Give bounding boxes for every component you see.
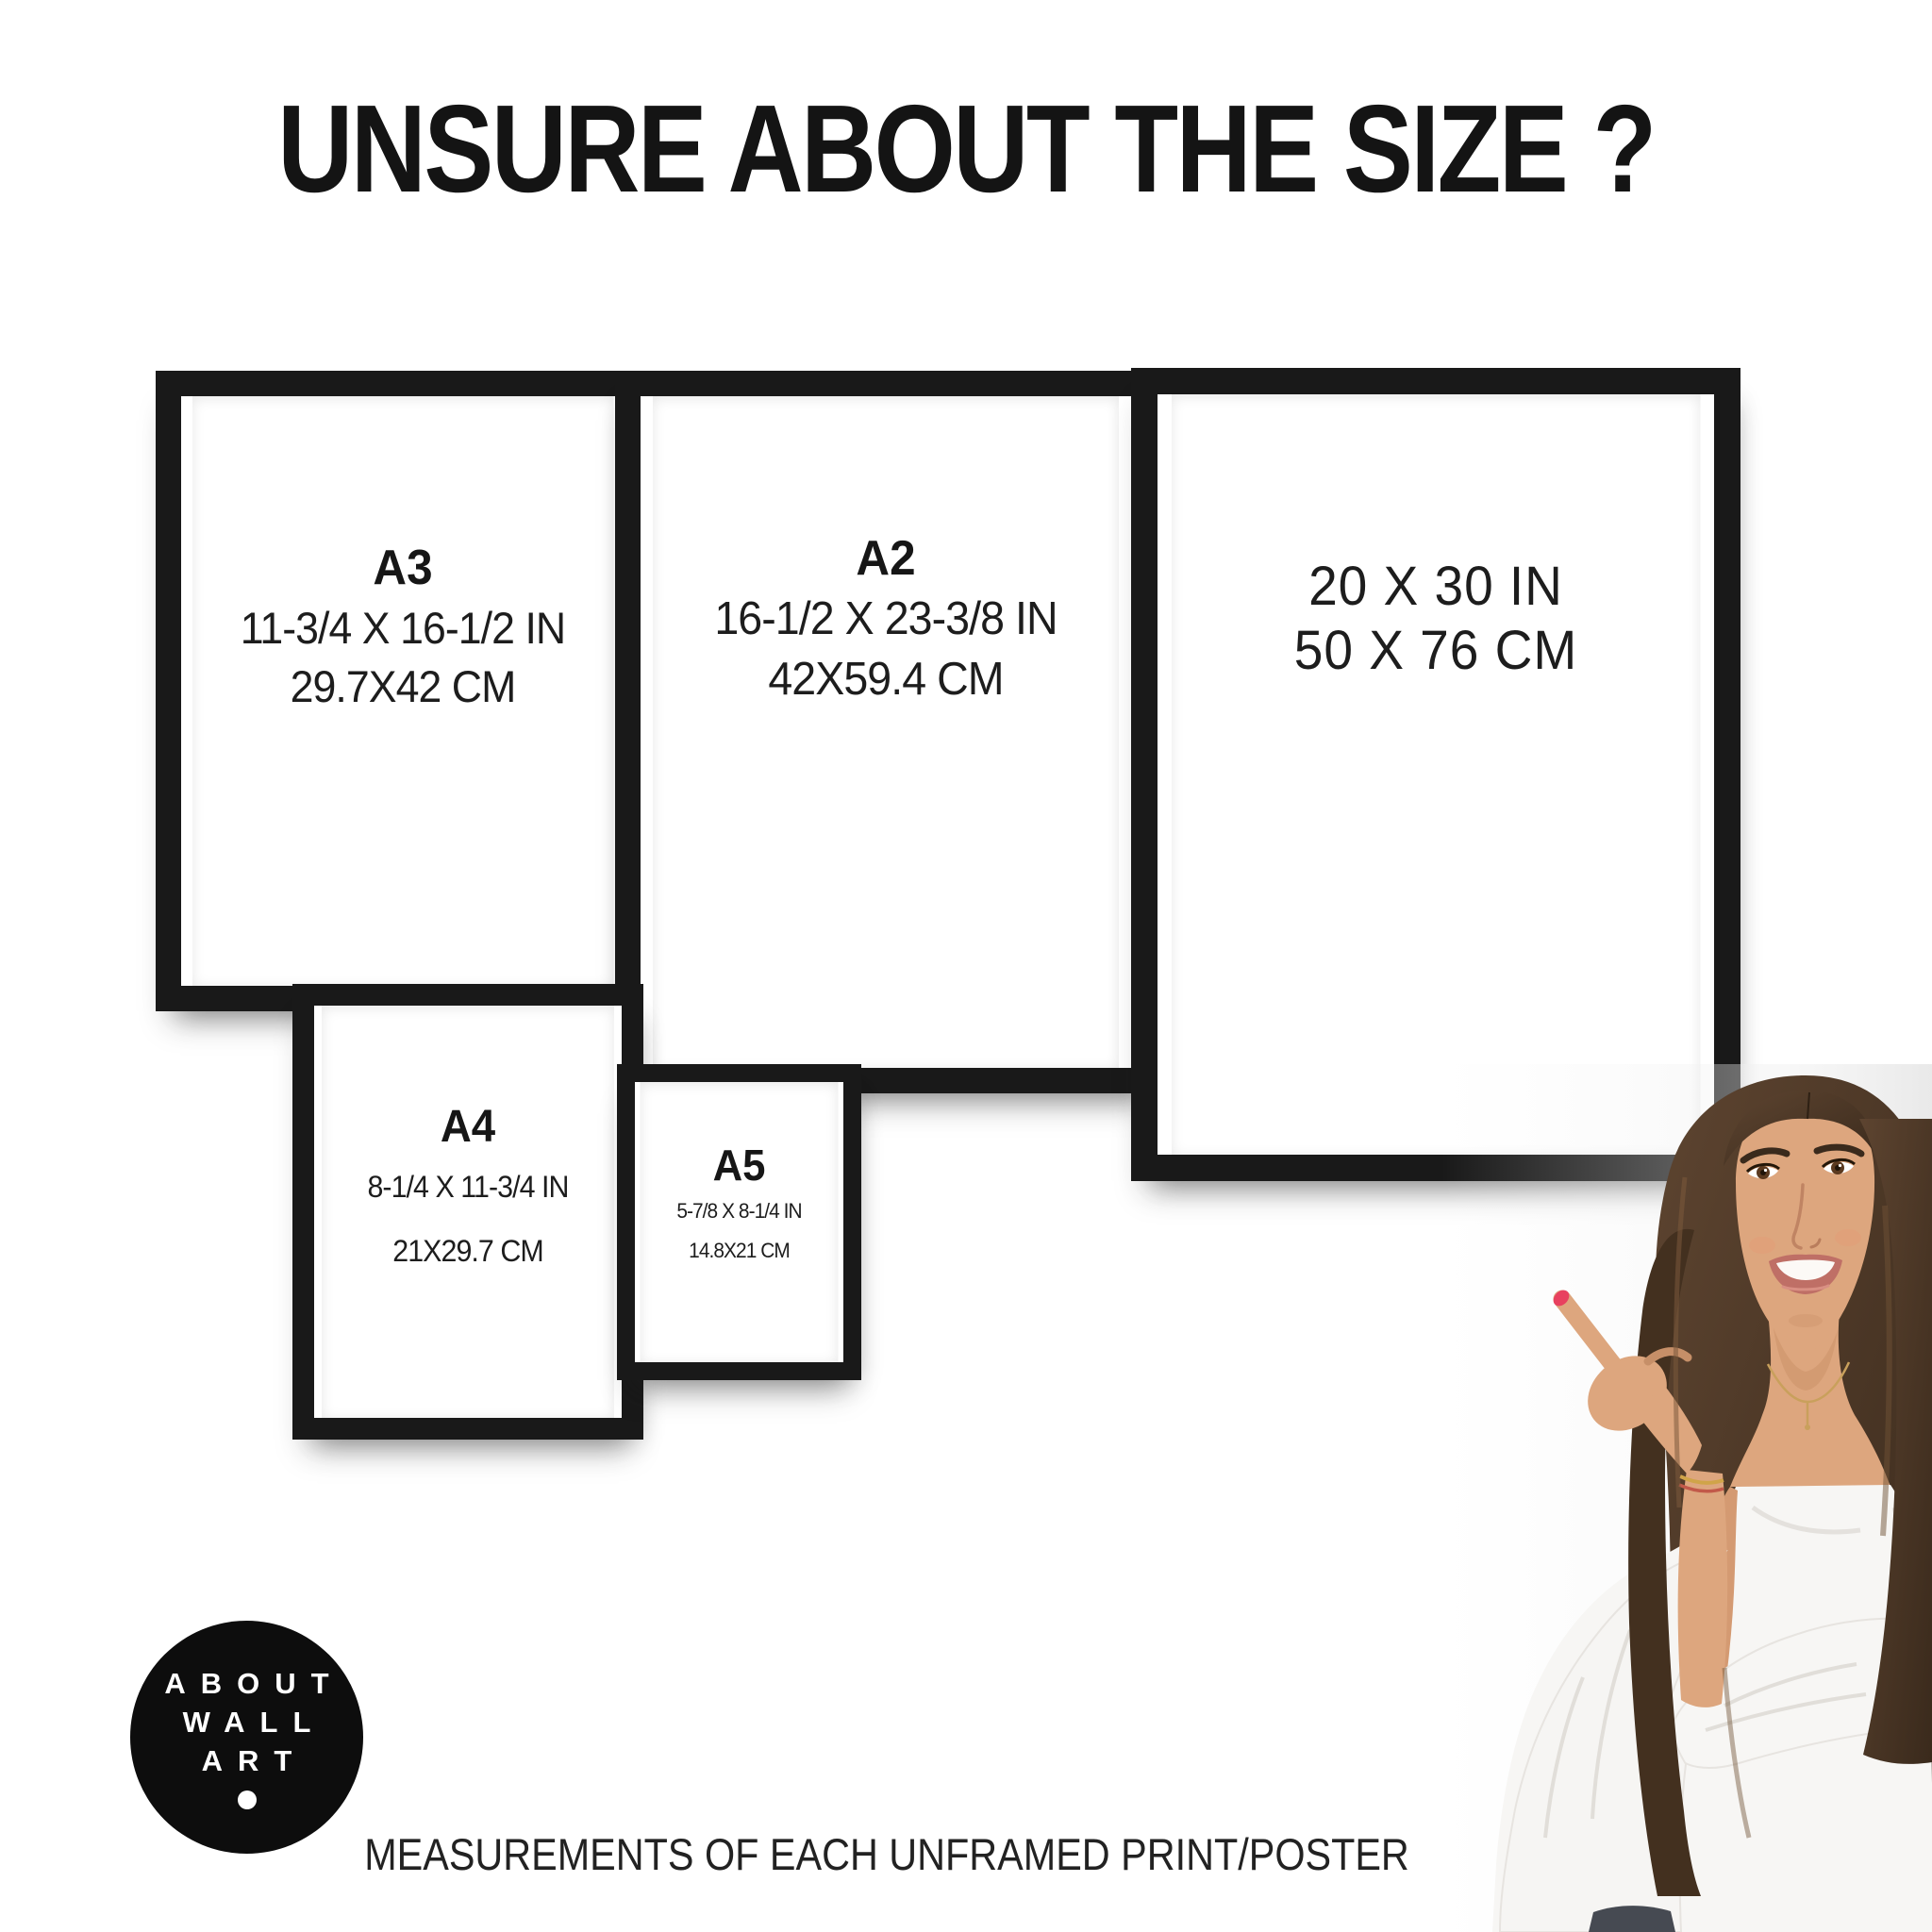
size-cm: 29.7X42 CM <box>291 658 516 716</box>
logo-text-art: ART <box>202 1742 308 1781</box>
frame-a3-plate: A3 11-3/4 X 16-1/2 IN 29.7X42 CM <box>192 396 614 986</box>
page-title: UNSURE ABOUT THE SIZE ? <box>155 87 1777 211</box>
size-cm: 14.8X21 CM <box>689 1238 790 1265</box>
forearm-skin <box>1678 1470 1728 1707</box>
frame-a3: A3 11-3/4 X 16-1/2 IN 29.7X42 CM <box>156 371 650 1011</box>
size-inches: 16-1/2 X 23-3/8 IN <box>714 590 1057 650</box>
size-inches: 8-1/4 X 11-3/4 IN <box>367 1168 568 1206</box>
frame-a2: A2 16-1/2 X 23-3/8 IN 42X59.4 CM <box>615 371 1157 1093</box>
frame-20x30-plate: 20 X 30 IN 50 X 76 CM <box>1172 394 1701 1155</box>
woman-pointing-photo <box>1441 1064 1932 1932</box>
size-label: A3 <box>373 538 432 599</box>
size-cm: 50 X 76 CM <box>1294 619 1577 683</box>
size-label: A5 <box>713 1141 766 1191</box>
frame-a2-plate: A2 16-1/2 X 23-3/8 IN 42X59.4 CM <box>653 396 1119 1068</box>
logo-text-about: ABOUT <box>164 1665 343 1704</box>
brand-logo: ABOUT WALL ART <box>130 1621 363 1854</box>
size-guide-page: UNSURE ABOUT THE SIZE ? A3 11-3/4 X 16-1… <box>0 0 1932 1932</box>
logo-text-wall: WALL <box>183 1704 326 1742</box>
caption: MEASUREMENTS OF EACH UNFRAMED PRINT/POST… <box>364 1828 1409 1880</box>
size-inches: 20 X 30 IN <box>1308 555 1563 619</box>
size-inches: 5-7/8 X 8-1/4 IN <box>676 1198 801 1225</box>
size-cm: 21X29.7 CM <box>392 1232 542 1270</box>
size-label: A2 <box>856 528 915 590</box>
size-inches: 11-3/4 X 16-1/2 IN <box>241 599 565 658</box>
frame-a4-plate: A4 8-1/4 X 11-3/4 IN 21X29.7 CM <box>322 1006 614 1418</box>
size-cm: 42X59.4 CM <box>768 650 1003 710</box>
logo-dot-icon <box>238 1790 257 1809</box>
frame-a5: A5 5-7/8 X 8-1/4 IN 14.8X21 CM <box>617 1064 861 1380</box>
frame-a4: A4 8-1/4 X 11-3/4 IN 21X29.7 CM <box>292 984 643 1440</box>
jeans <box>1589 1906 1675 1932</box>
frame-a5-plate: A5 5-7/8 X 8-1/4 IN 14.8X21 CM <box>641 1082 839 1362</box>
size-label: A4 <box>441 1100 495 1155</box>
frame-20x30: 20 X 30 IN 50 X 76 CM <box>1131 368 1740 1181</box>
